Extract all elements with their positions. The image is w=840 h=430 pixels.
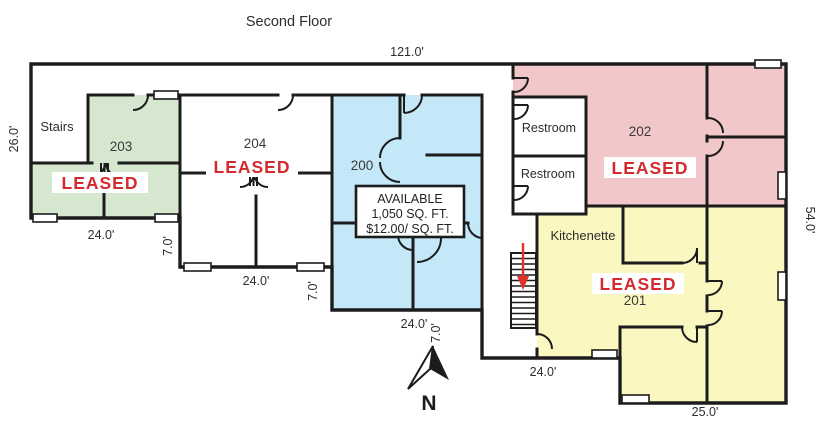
- room-201-number: 201: [624, 293, 647, 308]
- floor-plan-svg: AVAILABLE 1,050 SQ. FT. $12.00/ SQ. FT. …: [0, 0, 840, 430]
- svg-text:LEASED: LEASED: [62, 173, 139, 193]
- north-label: N: [421, 392, 436, 415]
- sign-line-1: AVAILABLE: [377, 192, 443, 206]
- room-202-number: 202: [629, 124, 652, 139]
- dim-suite203-width: 24.0': [88, 228, 115, 242]
- svg-text:LEASED: LEASED: [612, 158, 689, 178]
- dim-offset-a: 7.0': [161, 236, 175, 256]
- room-200-number: 200: [351, 158, 374, 173]
- sign-line-2: 1,050 SQ. FT.: [371, 207, 448, 221]
- page-title: Second Floor: [246, 14, 332, 30]
- dim-suite204-width: 24.0': [243, 274, 270, 288]
- room-203-leased-badge: LEASED: [52, 172, 148, 193]
- room-201-leased-badge: LEASED: [592, 273, 684, 294]
- dim-left-height: 26.0': [7, 126, 21, 153]
- restroom-top-label: Restroom: [522, 121, 576, 135]
- north-compass-icon: N: [408, 346, 449, 415]
- dim-top-width: 121.0': [390, 45, 424, 59]
- dim-suite201-width: 25.0': [692, 405, 719, 419]
- restroom-bottom-label: Restroom: [521, 167, 575, 181]
- room-202-leased-badge: LEASED: [604, 157, 696, 178]
- room-203-number: 203: [110, 139, 133, 154]
- room-204-number: 204: [244, 136, 267, 151]
- stairs-label: Stairs: [40, 119, 74, 134]
- dim-suite200-width: 24.0': [401, 317, 428, 331]
- floor-plan-page: AVAILABLE 1,050 SQ. FT. $12.00/ SQ. FT. …: [0, 0, 840, 430]
- dim-offset-c: 7.0': [429, 323, 443, 343]
- sign-line-3: $12.00/ SQ. FT.: [366, 222, 454, 236]
- availability-sign: AVAILABLE 1,050 SQ. FT. $12.00/ SQ. FT.: [356, 186, 464, 237]
- room-204-leased-badge: LEASED: [206, 156, 298, 177]
- svg-text:LEASED: LEASED: [214, 157, 291, 177]
- staircase: [511, 243, 536, 328]
- kitchenette-label: Kitchenette: [550, 228, 615, 243]
- svg-text:LEASED: LEASED: [600, 274, 677, 294]
- dim-offset-b: 7.0': [306, 281, 320, 301]
- dim-right-height: 54.0': [803, 207, 817, 234]
- dim-hall-width: 24.0': [530, 365, 557, 379]
